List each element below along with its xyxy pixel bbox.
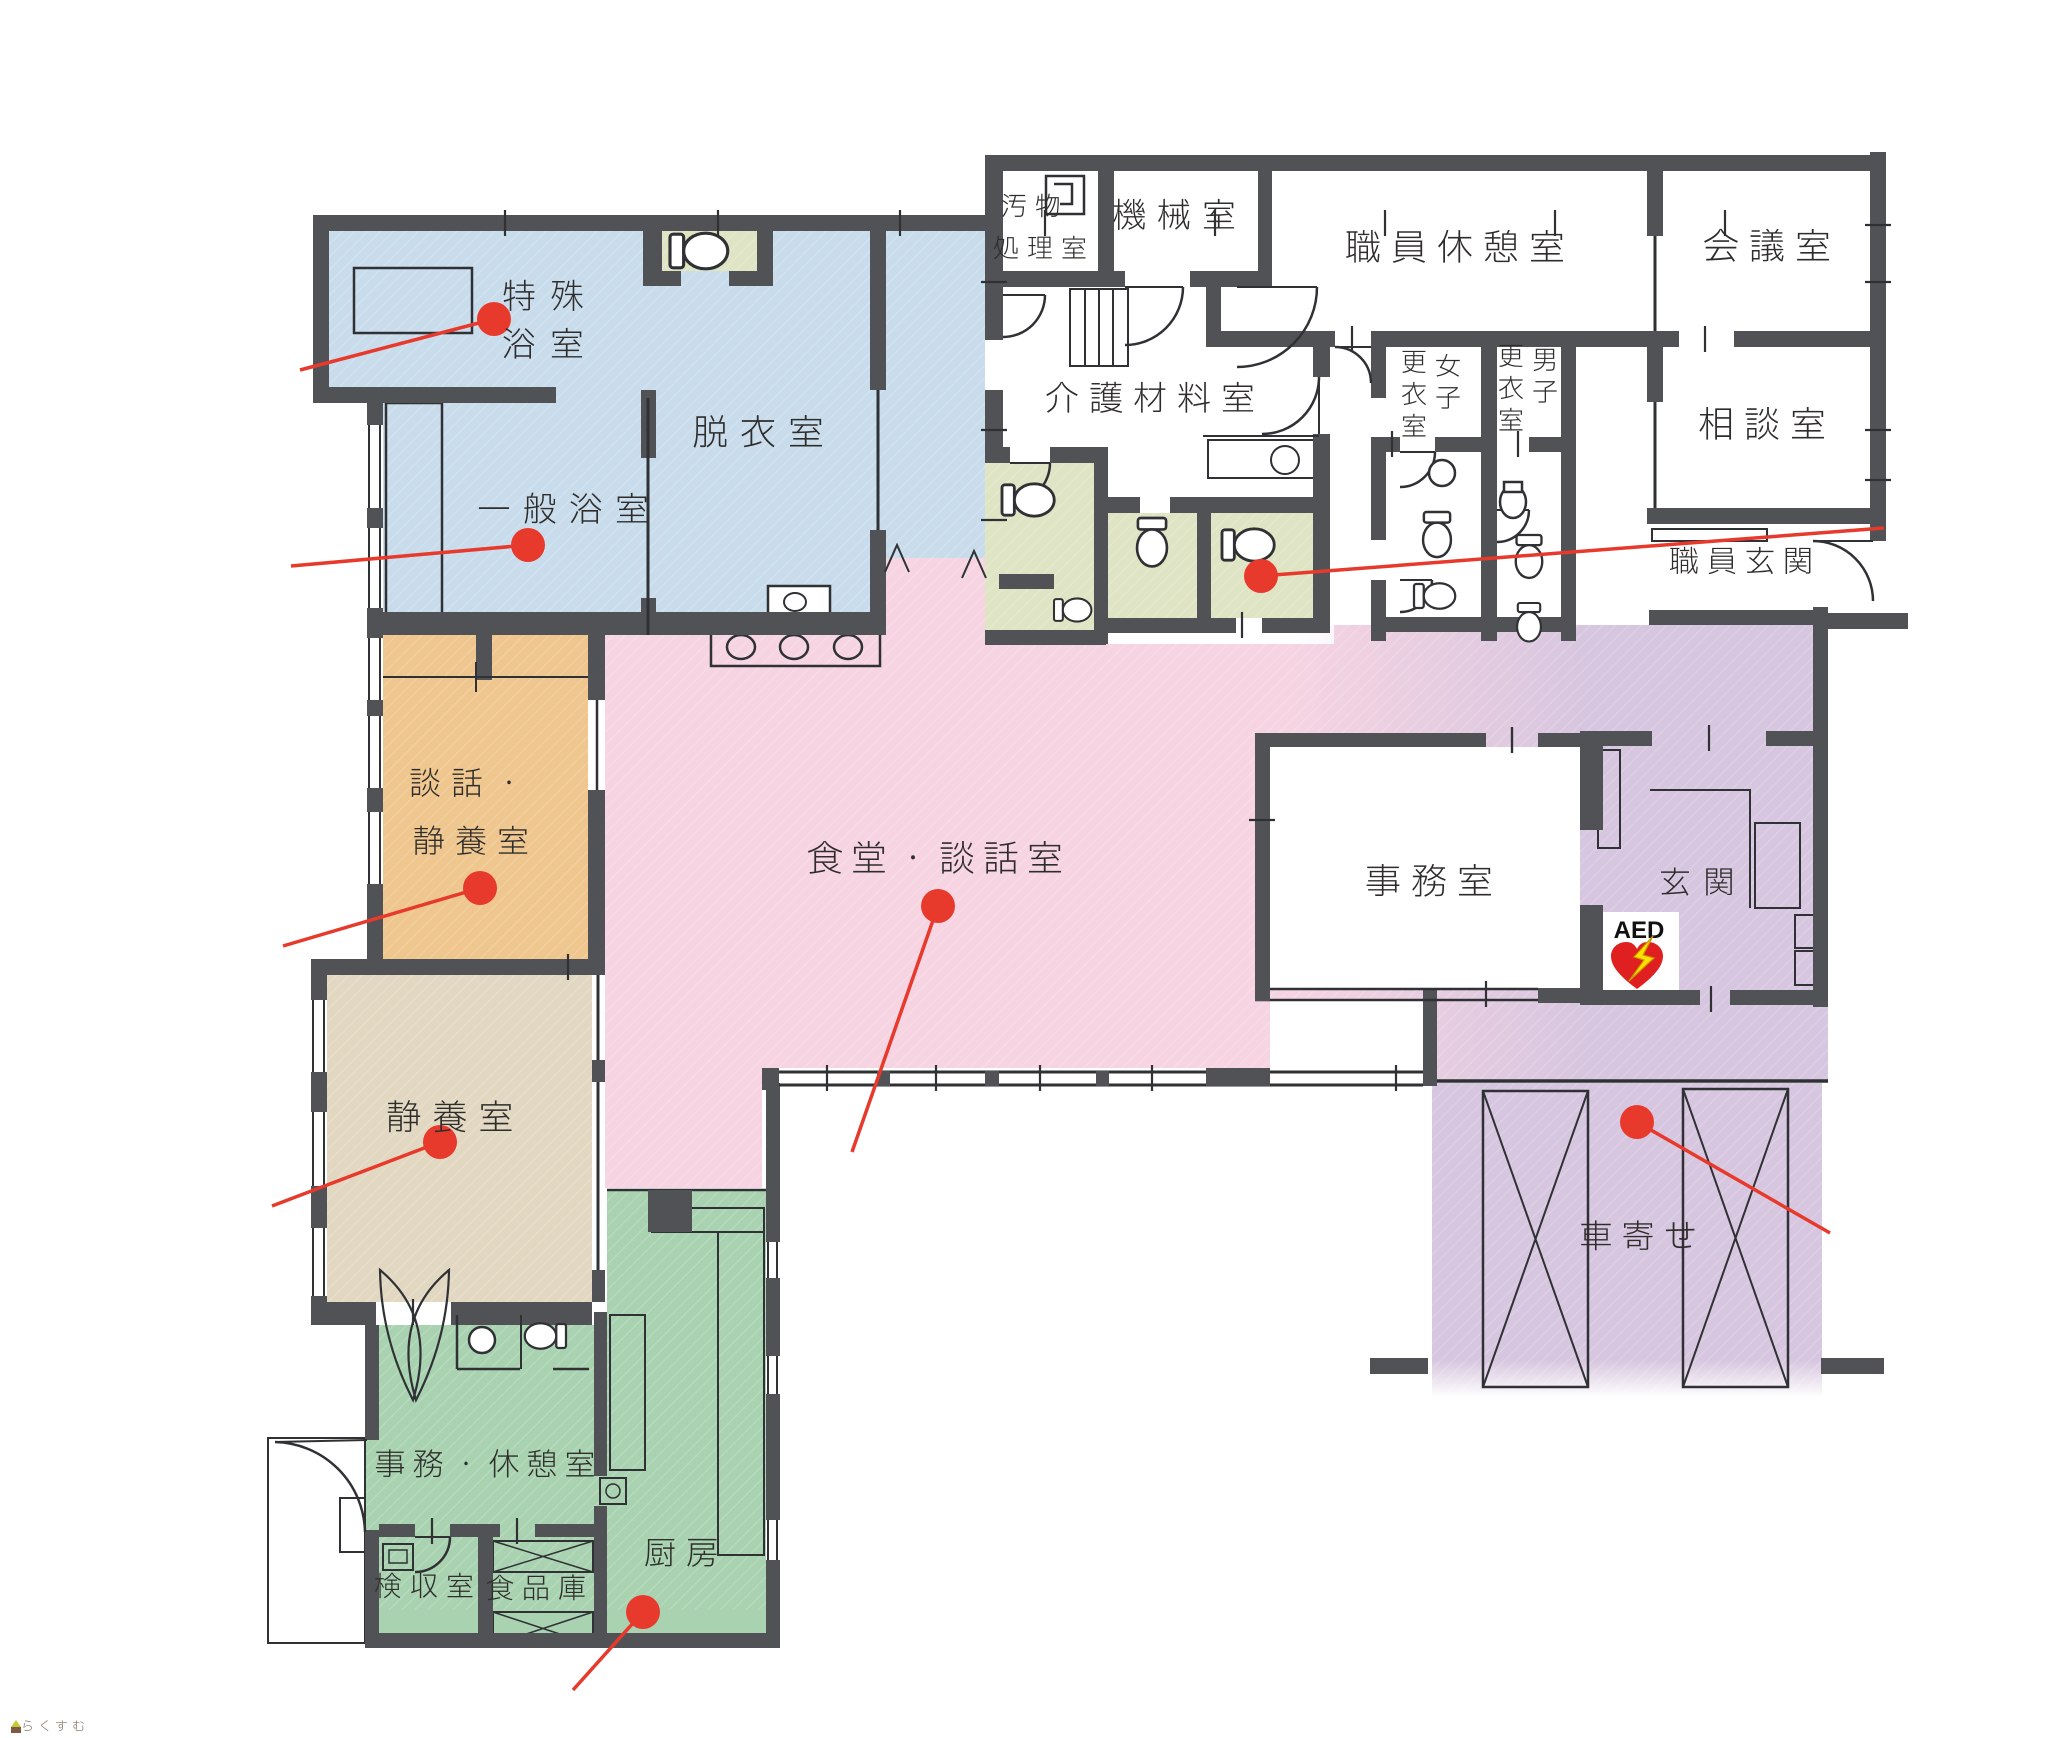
svg-text:AED: AED — [1614, 917, 1665, 944]
